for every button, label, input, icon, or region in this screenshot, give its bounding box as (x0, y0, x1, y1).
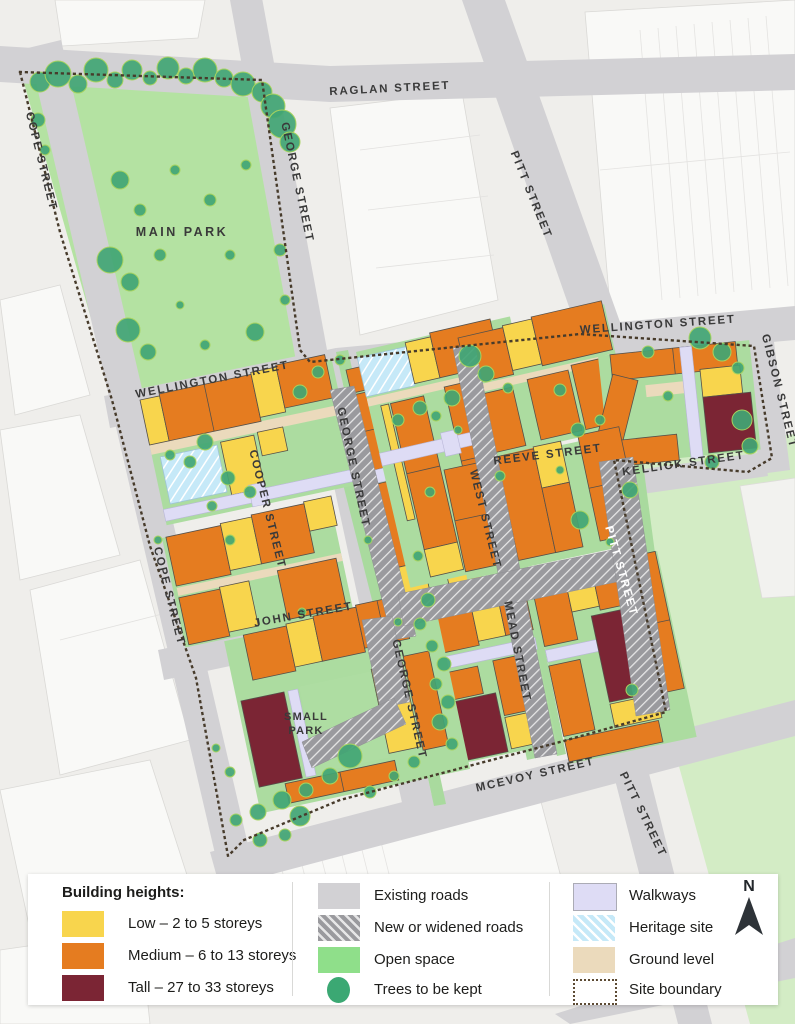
legend-swatch-new-roads (318, 915, 360, 941)
precinct-map: RAGLAN STREET COPE STREET COPE STREET GE… (0, 0, 795, 1024)
legend-label-ground-level: Ground level (629, 951, 714, 968)
legend-swatch-ground-level (573, 947, 615, 973)
north-label: N (733, 878, 765, 896)
legend-label-trees: Trees to be kept (374, 981, 482, 998)
legend-panel: Building heights: Low – 2 to 5 storeys M… (28, 874, 778, 1005)
legend-swatch-medium (62, 943, 104, 969)
north-indicator: N (733, 878, 765, 940)
legend-label-site-boundary: Site boundary (629, 981, 722, 998)
legend-label-existing-roads: Existing roads (374, 887, 468, 904)
legend-label-open-space: Open space (374, 951, 455, 968)
legend-swatch-site-boundary (573, 979, 617, 1005)
precinct-plan-page: RAGLAN STREET COPE STREET COPE STREET GE… (0, 0, 795, 1024)
legend-label-medium: Medium – 6 to 13 storeys (128, 947, 296, 964)
legend-title: Building heights: (62, 884, 184, 901)
legend-swatch-existing-roads (318, 883, 360, 909)
legend-swatch-low (62, 911, 104, 937)
legend-swatch-trees (327, 977, 350, 1003)
small-park-label-line1: SMALL (284, 711, 328, 723)
legend-label-walkways: Walkways (629, 887, 696, 904)
north-arrow-icon (734, 897, 764, 937)
legend-divider-2 (549, 882, 550, 996)
legend-label-tall: Tall – 27 to 33 storeys (128, 979, 274, 996)
legend-label-low: Low – 2 to 5 storeys (128, 915, 262, 932)
legend-label-new-roads: New or widened roads (374, 919, 523, 936)
legend-label-heritage: Heritage site (629, 919, 713, 936)
small-park-label-line2: PARK (288, 725, 323, 737)
legend-swatch-heritage (573, 915, 615, 941)
legend-swatch-open-space (318, 947, 360, 973)
main-park-label: MAIN PARK (136, 225, 228, 239)
legend-swatch-walkways (573, 883, 617, 911)
legend-swatch-tall (62, 975, 104, 1001)
legend-divider-1 (292, 882, 293, 996)
